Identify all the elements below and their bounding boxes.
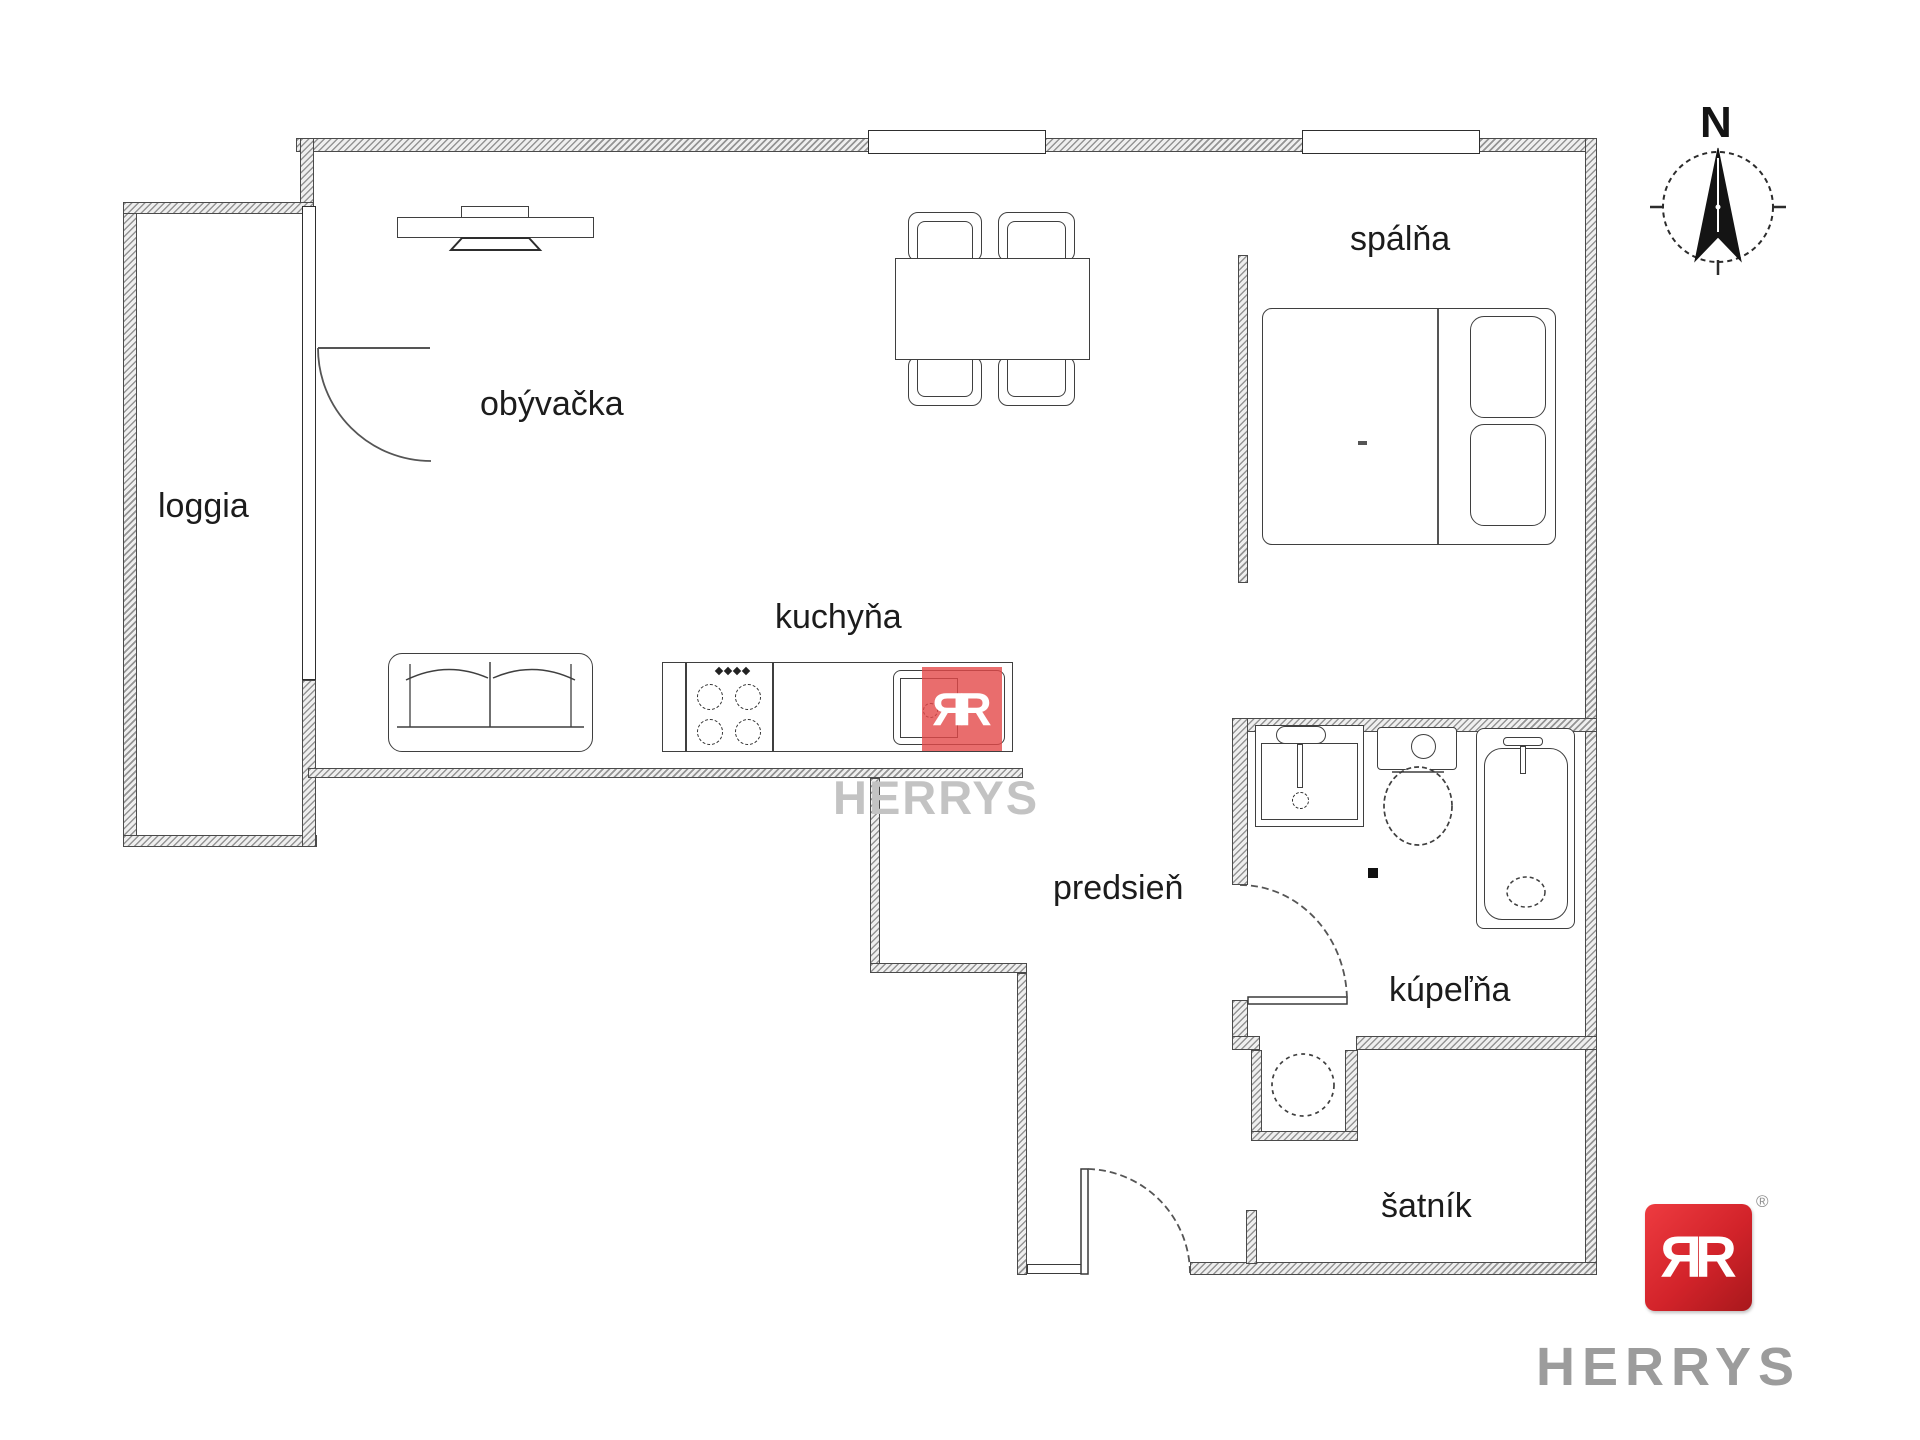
stove-burner <box>735 719 761 745</box>
wall-loggia-left <box>123 202 137 847</box>
loggia-door-arc <box>318 348 431 461</box>
wall-niche-left <box>1251 1050 1262 1141</box>
wall-right <box>1585 138 1597 1275</box>
wall-bath-left-upper <box>1232 718 1248 885</box>
wall-niche-right <box>1345 1050 1358 1141</box>
floor-plan: loggia obývačka kuchyňa spálňa predsieň … <box>0 0 1920 1440</box>
counter-divider <box>772 663 774 751</box>
stove-burner <box>697 719 723 745</box>
herrys-watermark-badge: RR <box>922 667 1002 751</box>
wall-hall-lower-left <box>1017 973 1027 1275</box>
dining-chair <box>908 212 982 262</box>
wall-bath-stub <box>1232 1036 1260 1050</box>
entrance-door-leaf <box>1081 1169 1088 1274</box>
tv-screen <box>461 206 529 218</box>
tub-faucet <box>1503 737 1543 746</box>
monogram-mirrored-r: R <box>1660 1229 1702 1287</box>
registered-trademark-icon: ® <box>1756 1192 1769 1212</box>
room-label-kitchen: kuchyňa <box>775 598 902 637</box>
room-label-bedroom: spálňa <box>1350 220 1450 259</box>
wall-bedroom-partition <box>1238 255 1248 583</box>
dining-chair <box>998 356 1075 406</box>
wall-closet-stub <box>1246 1210 1257 1264</box>
stove-burner <box>697 684 723 710</box>
floor-drain-dot <box>1368 868 1378 878</box>
compass-circle <box>1663 152 1773 262</box>
tv-board <box>397 217 594 238</box>
dining-chair <box>998 212 1075 262</box>
compass-north-label: N <box>1700 98 1732 148</box>
herrys-logo-badge: RR <box>1645 1204 1752 1311</box>
bathroom-door-leaf <box>1248 997 1347 1004</box>
bath-faucet <box>1276 726 1326 744</box>
wall-bottom-thin <box>1027 1264 1087 1274</box>
bath-faucet-stem <box>1297 744 1303 788</box>
bathroom-door-arc <box>1240 885 1347 1001</box>
herrys-logo-text: HERRYS <box>1536 1336 1801 1398</box>
stove-burner <box>735 684 761 710</box>
pillow <box>1470 424 1546 526</box>
compass-center-dot <box>1716 205 1721 210</box>
toilet-button <box>1411 734 1436 759</box>
wall-living-left <box>300 138 314 206</box>
tub-faucet-stem <box>1520 746 1526 774</box>
room-label-hallway: predsieň <box>1053 869 1183 908</box>
toilet-bowl <box>1384 767 1452 845</box>
herrys-watermark-text: HERRYS <box>833 770 1039 825</box>
window-bedroom <box>1302 130 1480 154</box>
entrance-door-arc <box>1088 1169 1190 1274</box>
sink-drain <box>1292 792 1309 809</box>
counter-divider <box>685 663 687 751</box>
room-label-closet: šatník <box>1381 1187 1472 1226</box>
room-label-loggia: loggia <box>158 487 249 526</box>
dining-table <box>895 258 1090 360</box>
sofa <box>388 653 593 752</box>
window-living <box>868 130 1046 154</box>
wall-bath-bottom <box>1356 1036 1597 1050</box>
pillow <box>1470 316 1546 418</box>
loggia-window <box>302 206 316 680</box>
monogram-mirrored-r: R <box>932 686 965 732</box>
wall-loggia-top <box>123 202 314 214</box>
room-label-living: obývačka <box>480 385 624 424</box>
bed-divider <box>1437 309 1439 544</box>
wall-loggia-bottom <box>123 835 317 847</box>
room-label-bathroom: kúpeľňa <box>1389 971 1510 1010</box>
wall-hall-step <box>870 963 1027 973</box>
wall-loggia-right-lower <box>302 680 316 847</box>
tv-stand-foot <box>451 238 540 250</box>
dining-chair <box>908 356 982 406</box>
bathtub-inner <box>1484 748 1568 920</box>
bed-mark <box>1358 441 1367 445</box>
wall-niche-bottom <box>1251 1131 1358 1141</box>
bath-sink-basin <box>1261 743 1358 820</box>
compass-needle <box>1695 148 1741 261</box>
washing-machine <box>1272 1054 1334 1116</box>
